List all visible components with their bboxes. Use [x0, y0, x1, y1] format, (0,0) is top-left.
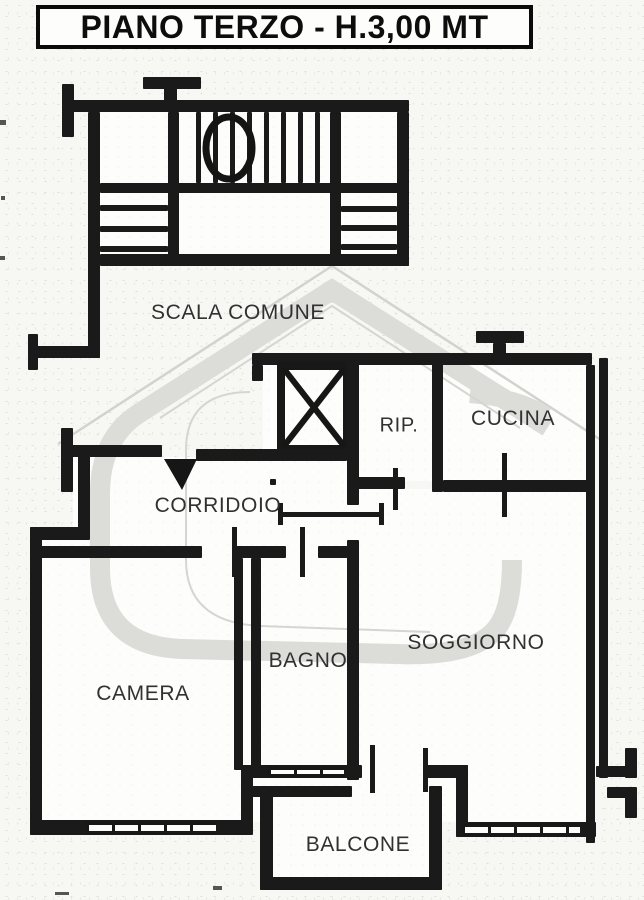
- stair-spiral-icon: [206, 117, 252, 179]
- room-label-rip: RIP.: [380, 415, 419, 438]
- room-label-corridoio: CORRIDOIO: [155, 494, 282, 518]
- plan-symbols-overlay: [0, 0, 644, 900]
- room-label-bagno: BAGNO: [269, 649, 348, 673]
- room-label-balcone: BALCONE: [306, 833, 411, 857]
- floorplan-canvas: PIANO TERZO - H.3,00 MT: [0, 0, 644, 900]
- entrance-arrow-icon: [164, 459, 197, 490]
- plan-title: PIANO TERZO - H.3,00 MT: [81, 9, 489, 45]
- room-label-soggiorno: SOGGIORNO: [407, 631, 544, 655]
- room-label-scala: SCALA COMUNE: [151, 301, 325, 325]
- room-label-camera: CAMERA: [96, 682, 189, 706]
- title-box: PIANO TERZO - H.3,00 MT: [36, 5, 533, 49]
- room-label-cucina: CUCINA: [471, 407, 555, 431]
